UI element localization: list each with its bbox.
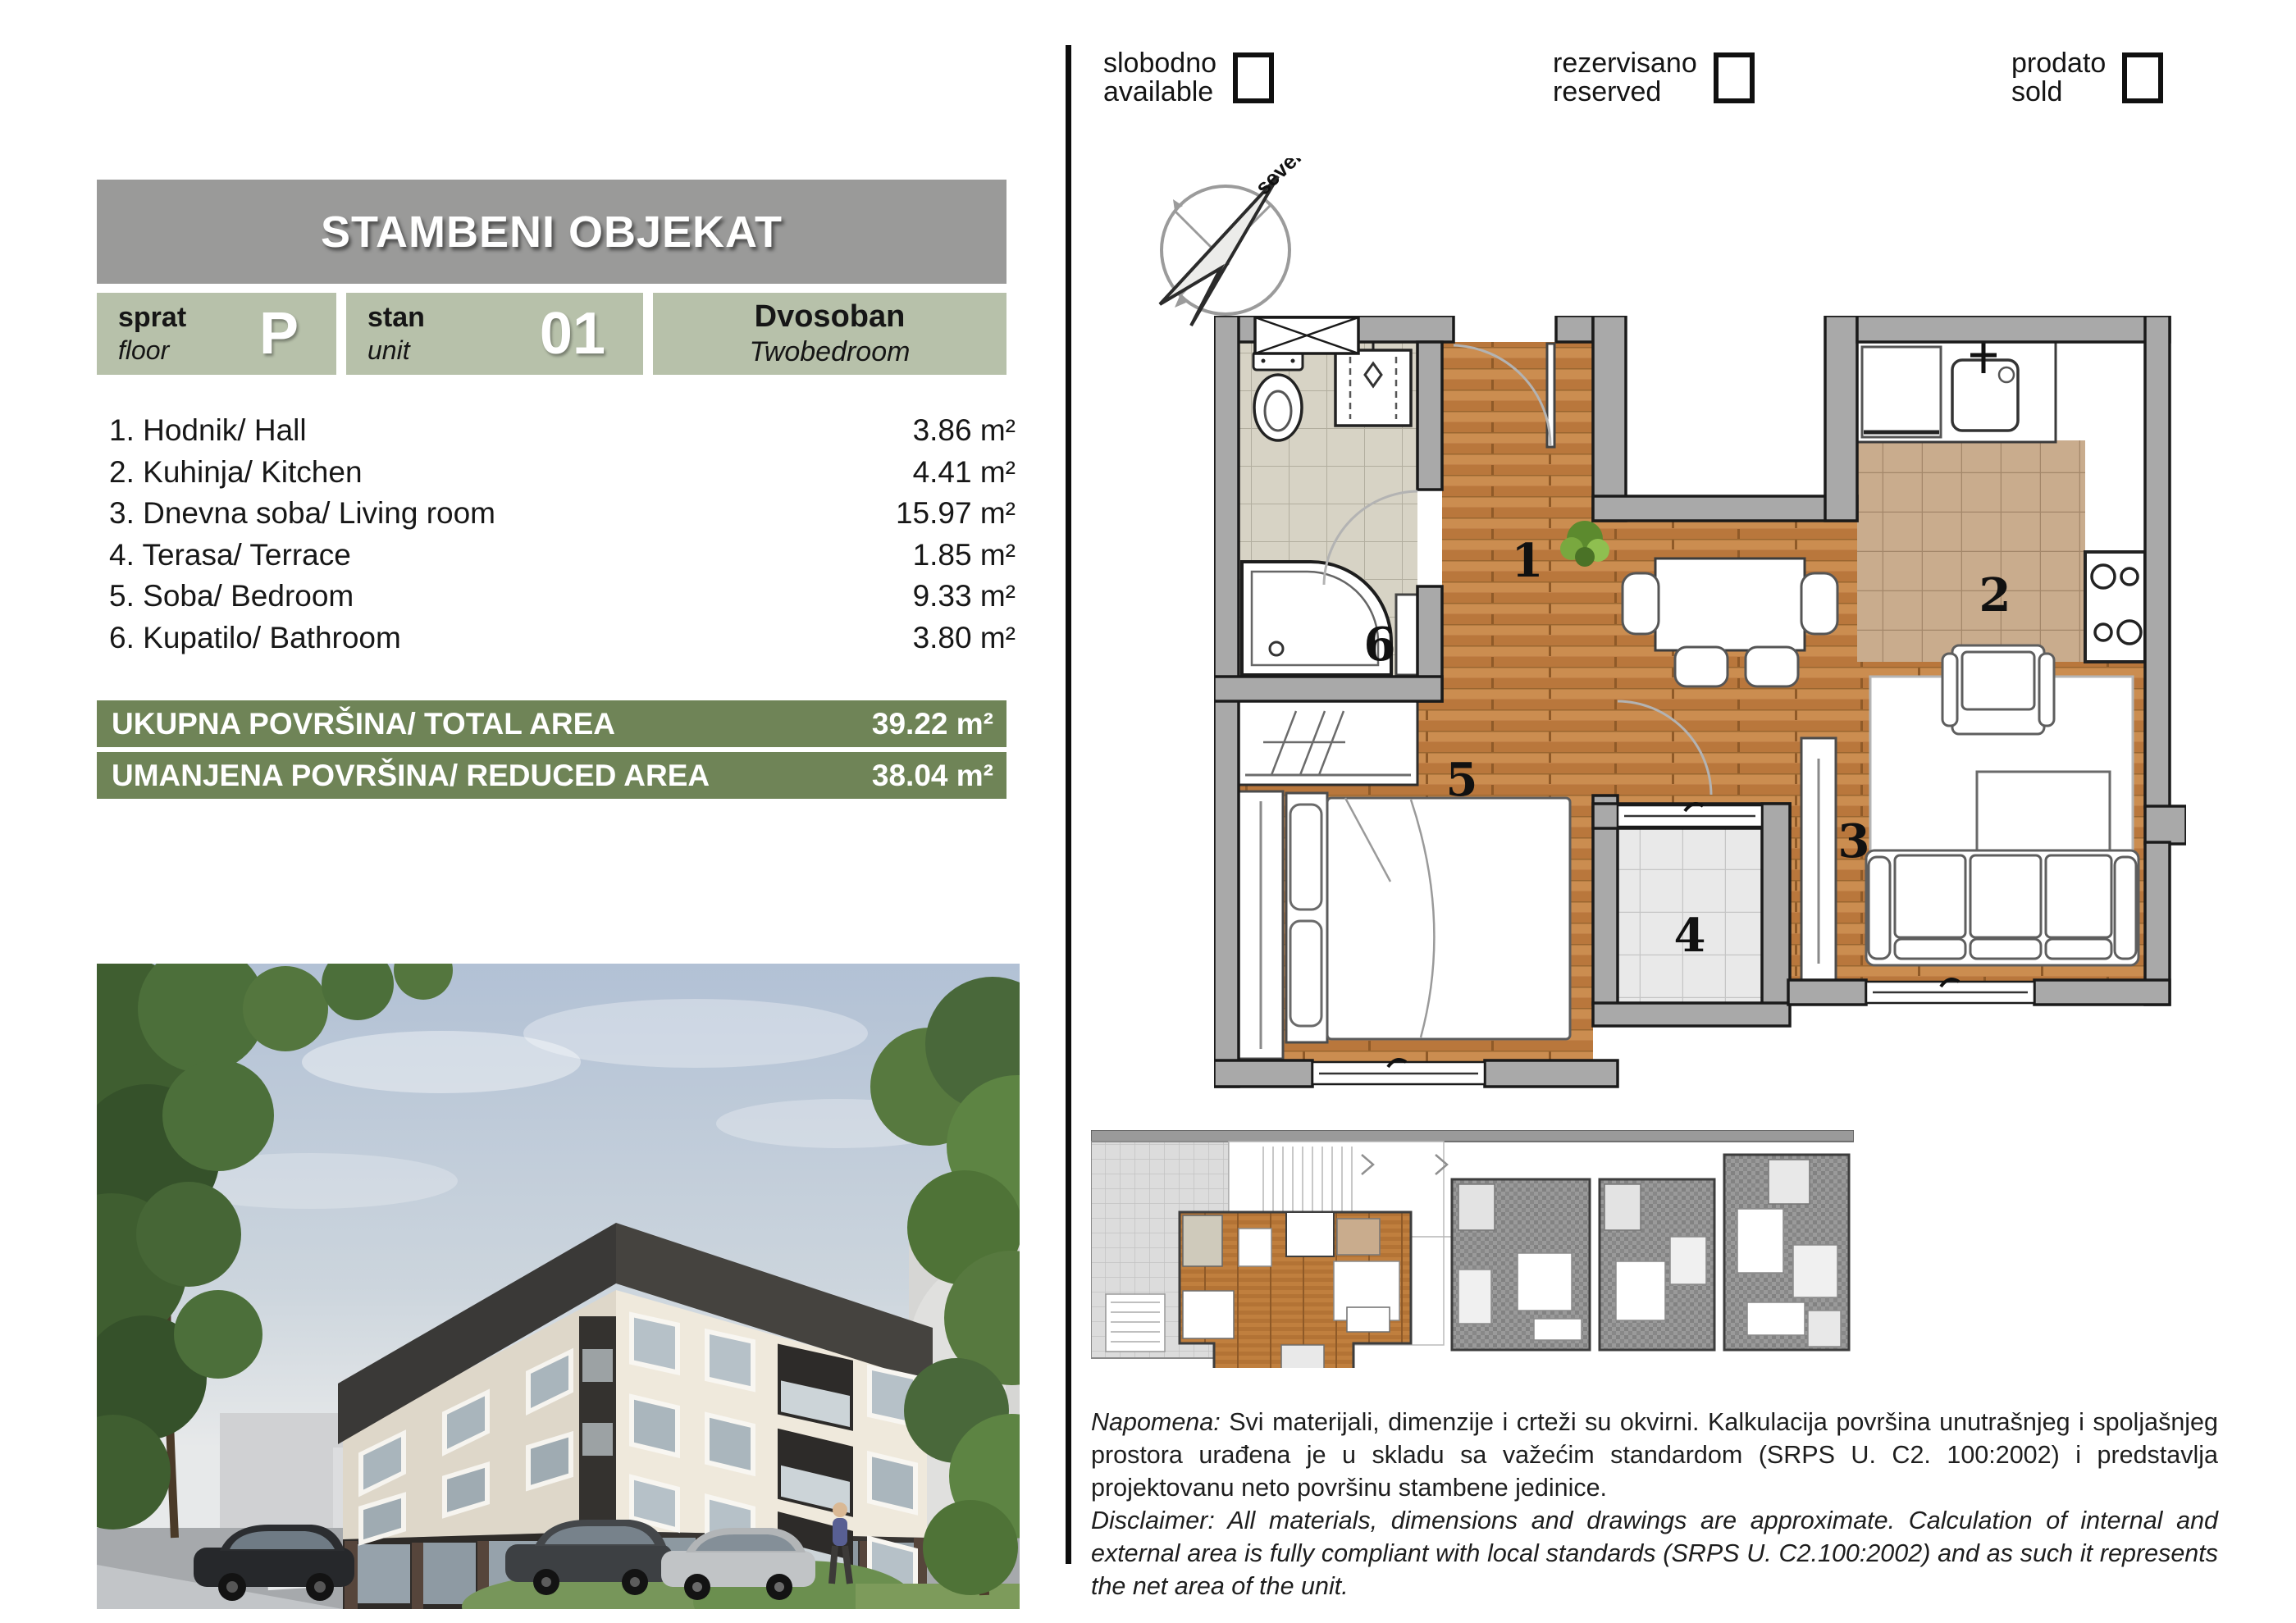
bathroom-sink [1396,595,1417,675]
building-render [97,964,1020,1609]
balcony-stack-left [579,1316,616,1521]
living-room-window [1866,979,2034,1003]
room-label-bedroom: 5 [1446,753,1478,807]
type-label-en: Twobedroom [750,335,911,369]
sofa [1866,850,2139,965]
unit-label-en: unit [367,334,425,367]
column-divider [1066,45,1071,1564]
dining-chair [1746,647,1798,686]
compass-north-label: sever [1250,158,1307,199]
legend-sold: prodato sold [2011,49,2163,107]
floor-label-sr: sprat [118,301,186,334]
sold-checkbox [2122,52,2163,103]
reduced-area-value: 38.04 m² [872,759,1006,793]
dining-chair [1675,647,1728,686]
unit-value: 01 [540,300,605,367]
type-box: Dvosoban Twobedroom [653,293,1006,375]
unit-box: stan unit 01 [346,293,643,375]
total-area-label: UKUPNA POVRŠINA/ TOTAL AREA [97,707,615,741]
reduced-area-label: UMANJENA POVRŠINA/ REDUCED AREA [97,759,710,793]
dining-chair [1623,573,1659,634]
room-label-hall: 1 [1512,534,1544,588]
mini-unit-dark [1600,1179,1714,1350]
fridge [1862,347,1941,437]
room-label-kitchen: 2 [1979,568,2011,622]
room-row: 5. Soba/ Bedroom9.33 m² [109,576,1016,618]
compass: sever [1147,158,1307,326]
room-row: 2. Kuhinja/ Kitchen4.41 m² [109,452,1016,494]
total-area-value: 39.22 m² [872,707,1006,741]
room-label-bathroom: 6 [1364,618,1396,672]
type-label-sr: Dvosoban [755,299,906,335]
tv-stand [1801,738,1836,984]
room-row: 3. Dnevna soba/ Living room15.97 m² [109,493,1016,535]
mini-floor-plan [1091,1130,1854,1368]
unit-label-sr: stan [367,301,425,334]
wardrobe [1239,791,1283,1059]
mini-plan-top-wall [1091,1130,1854,1142]
vent-shaft [1255,317,1358,353]
kitchen-floor [1857,440,2085,662]
disclaimer-serbian: Napomena: Svi materijali, dimenzije i cr… [1091,1406,2218,1504]
brochure-page: STAMBENI OBJEKAT sprat floor P stan unit… [0,0,2296,1623]
disclaimer: Napomena: Svi materijali, dimenzije i cr… [1091,1406,2218,1602]
mini-unit-highlighted [1180,1212,1411,1368]
room-label-living: 3 [1838,814,1870,868]
floor-label-en: floor [118,334,186,367]
available-checkbox [1233,52,1274,103]
closet [1239,701,1417,785]
room-row: 4. Terasa/ Terrace1.85 m² [109,535,1016,577]
room-row: 6. Kupatilo/ Bathroom3.80 m² [109,618,1016,659]
terrace-door [1618,804,1762,827]
floor-box: sprat floor P [97,293,336,375]
armchair [1942,645,2054,734]
page-title: STAMBENI OBJEKAT [321,207,783,258]
dining-chair [1801,573,1837,634]
stove [2085,552,2145,662]
toilet [1253,352,1303,440]
legend-available: slobodno available [1103,49,1274,107]
room-row: 1. Hodnik/ Hall3.86 m² [109,410,1016,452]
mini-unit-dark [1452,1179,1590,1350]
room-list: 1. Hodnik/ Hall3.86 m² 2. Kuhinja/ Kitch… [109,410,1016,659]
legend-reserved: rezervisano reserved [1553,49,1755,107]
total-area-bar: UKUPNA POVRŠINA/ TOTAL AREA 39.22 m² [97,700,1006,747]
bedroom-window [1312,1060,1485,1084]
floor-value: P [259,300,299,367]
bed [1286,793,1570,1042]
floor-plan: 1 2 3 4 5 6 [1214,316,2186,1091]
kitchen-counter [1857,342,2056,442]
disclaimer-english: Disclaimer: All materials, dimensions an… [1091,1504,2218,1602]
room-label-terrace: 4 [1674,909,1706,963]
mini-unit-dark [1724,1155,1849,1350]
reserved-checkbox [1714,52,1755,103]
header-banner: STAMBENI OBJEKAT [97,180,1006,284]
reduced-area-bar: UMANJENA POVRŠINA/ REDUCED AREA 38.04 m² [97,752,1006,799]
